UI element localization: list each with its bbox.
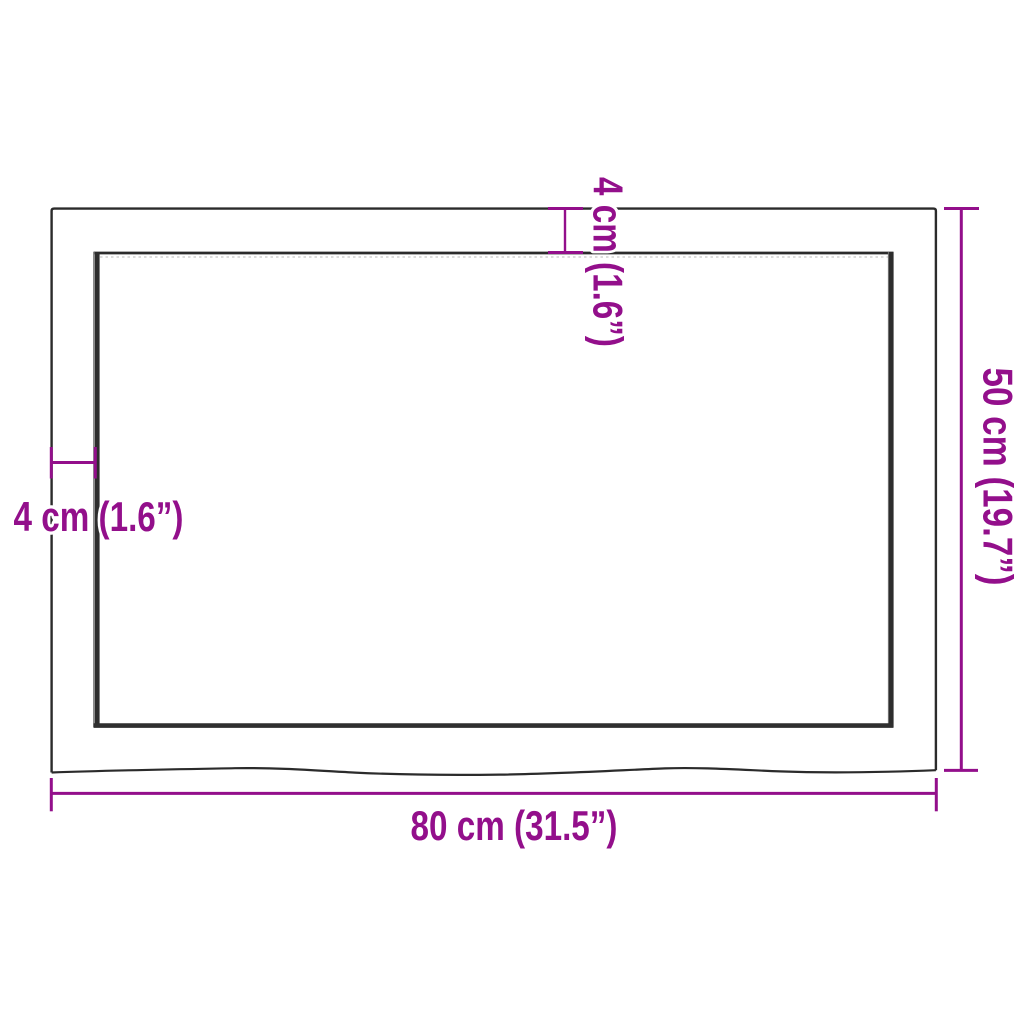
svg-text:80 cm (31.5”): 80 cm (31.5”): [411, 802, 618, 849]
svg-text:4 cm (1.6”): 4 cm (1.6”): [14, 493, 184, 540]
svg-text:50 cm (19.7”): 50 cm (19.7”): [975, 368, 1022, 586]
svg-text:4 cm (1.6”): 4 cm (1.6”): [585, 177, 632, 347]
